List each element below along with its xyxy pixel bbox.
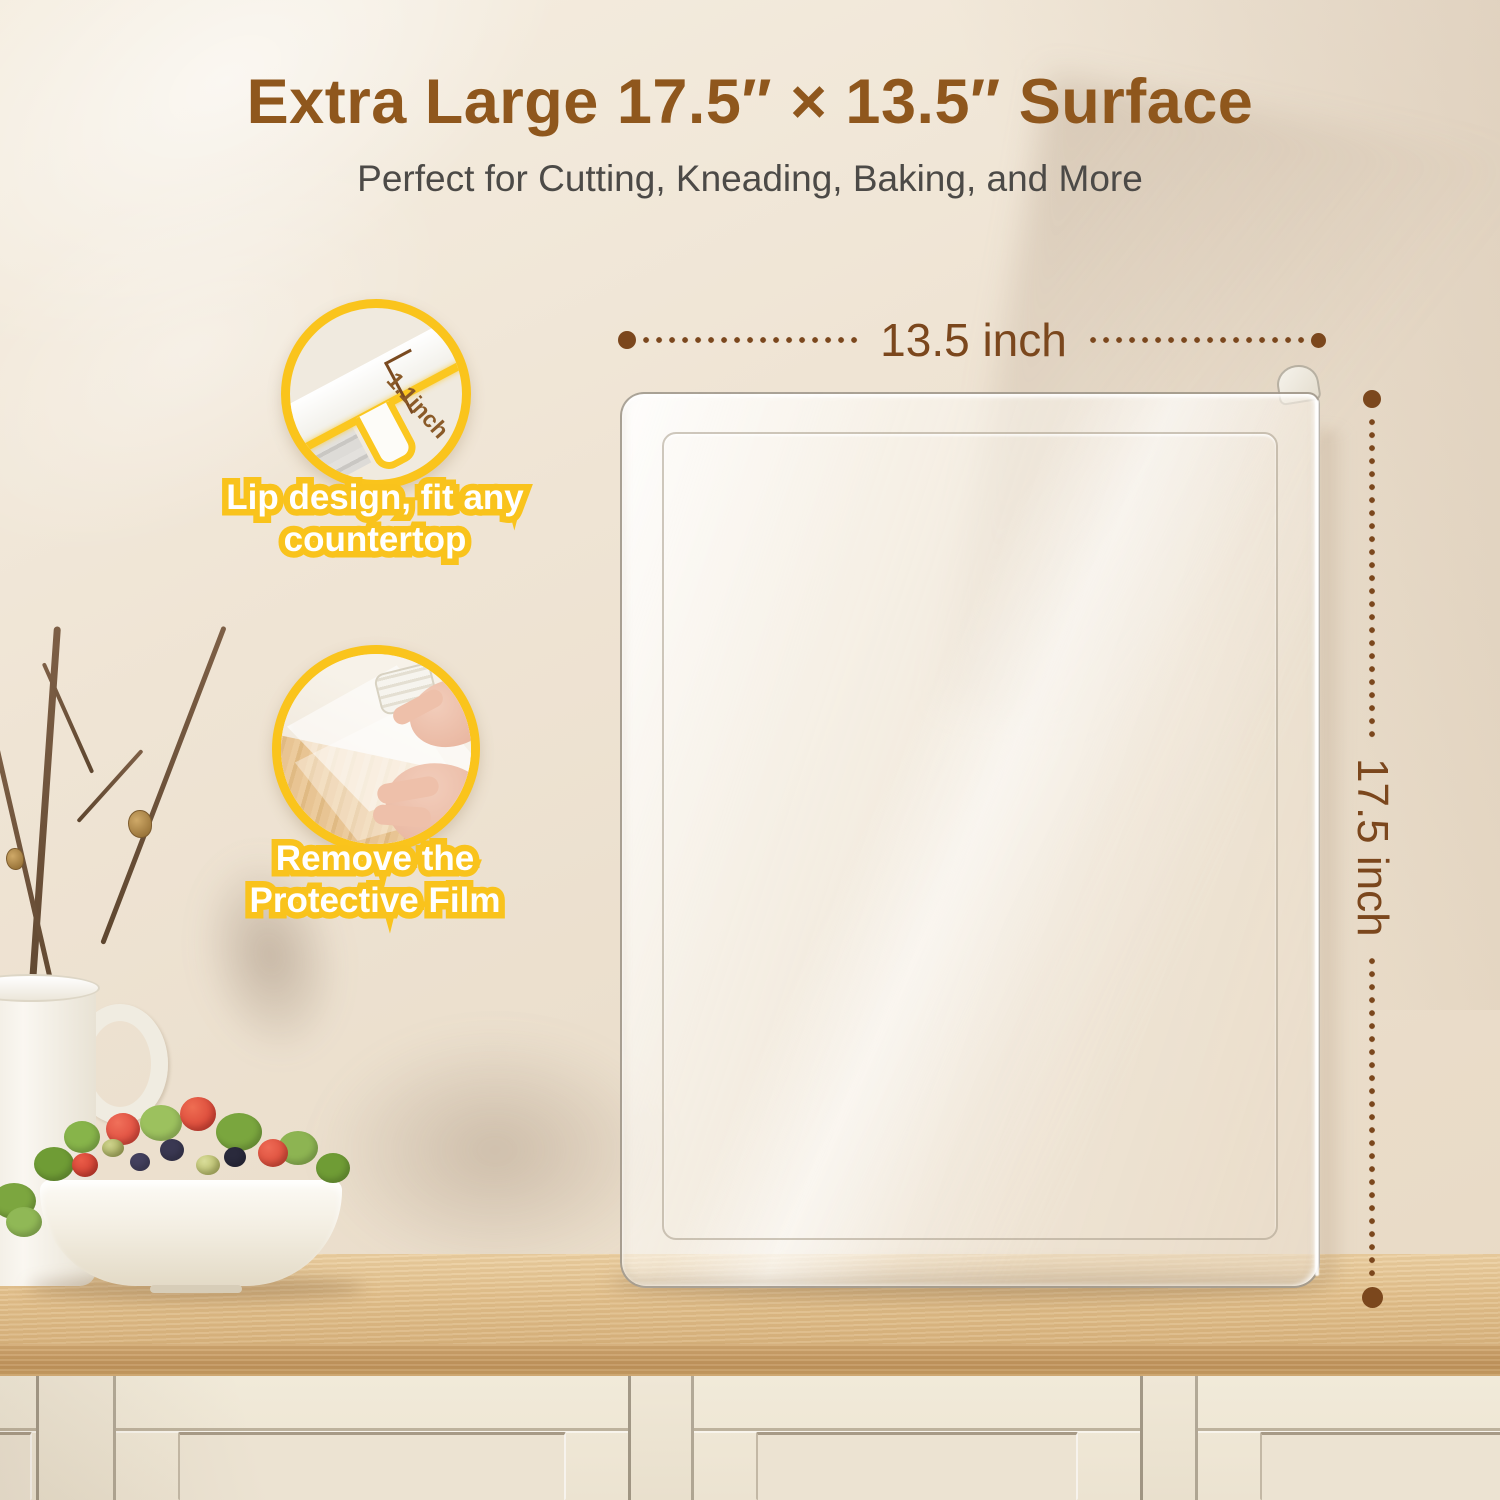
caption-line: Lip design, fit any bbox=[170, 477, 580, 519]
salad-bit bbox=[130, 1153, 150, 1171]
callout-caption-remove-film: Remove the Protective Film bbox=[165, 838, 585, 922]
salad-bit bbox=[180, 1097, 216, 1131]
pot-shadow bbox=[320, 1030, 670, 1270]
cabinet-panel bbox=[1260, 1432, 1500, 1500]
salad-bit bbox=[140, 1105, 182, 1141]
lip-design-photo: 1.1inch bbox=[281, 299, 471, 489]
dry-branches bbox=[0, 598, 220, 1018]
salad-bit bbox=[224, 1147, 246, 1167]
cabinet-stile bbox=[1140, 1376, 1198, 1500]
dotted-line bbox=[1369, 414, 1375, 742]
salad bbox=[20, 1095, 360, 1215]
dotted-line bbox=[1369, 953, 1375, 1281]
salad-bit bbox=[216, 1113, 262, 1151]
finger bbox=[372, 804, 431, 828]
salad-bit bbox=[72, 1153, 98, 1177]
height-dimension-label: 17.5 inch bbox=[1347, 758, 1397, 937]
caption-line: Protective Film bbox=[165, 880, 585, 922]
callout-caption-lip-design: Lip design, fit any countertop bbox=[170, 477, 580, 561]
width-dimension-line: 13.5 inch bbox=[618, 316, 1326, 364]
acrylic-cutting-board bbox=[620, 392, 1320, 1288]
width-dimension-label: 13.5 inch bbox=[880, 313, 1067, 367]
dimension-endpoint-dot bbox=[618, 331, 636, 349]
lip-design-scene bbox=[281, 299, 471, 489]
wood-countertop-edge bbox=[0, 1344, 1500, 1376]
page-title: Extra Large 17.5″ × 13.5″ Surface bbox=[0, 66, 1500, 138]
height-dimension-line: 17.5 inch bbox=[1346, 390, 1398, 1308]
board-cast-shadow bbox=[1318, 430, 1348, 1281]
dotted-line bbox=[1089, 337, 1305, 343]
caption-line: Remove the bbox=[165, 838, 585, 880]
salad-bit bbox=[316, 1153, 350, 1183]
branch-bud bbox=[128, 810, 152, 838]
dimension-endpoint-dot bbox=[1363, 390, 1381, 408]
dotted-line bbox=[642, 337, 858, 343]
salad-bit bbox=[64, 1121, 100, 1153]
branch-bud bbox=[6, 848, 24, 870]
dimension-endpoint-dot bbox=[1362, 1287, 1383, 1308]
salad-bit bbox=[102, 1139, 124, 1157]
cabinet-stile bbox=[628, 1376, 694, 1500]
board-edge-highlight bbox=[1315, 400, 1319, 1276]
salad-bit bbox=[196, 1155, 220, 1175]
board-groove bbox=[662, 432, 1278, 1240]
page-subtitle: Perfect for Cutting, Kneading, Baking, a… bbox=[0, 158, 1500, 200]
dimension-endpoint-dot bbox=[1311, 333, 1326, 348]
caption-line: countertop bbox=[170, 519, 580, 561]
film-removal-photo bbox=[272, 645, 480, 853]
product-banner: 13.5 inch 17.5 inch Extra Large 17.5″ × … bbox=[0, 0, 1500, 1500]
salad-bit bbox=[34, 1147, 74, 1181]
cabinet-panel bbox=[756, 1432, 1078, 1500]
salad-bit bbox=[6, 1207, 42, 1237]
salad-bit bbox=[258, 1139, 288, 1167]
cabinet-doors bbox=[0, 1376, 1500, 1500]
cabinet-light-overlay bbox=[0, 1376, 420, 1500]
salad-bowl-foot bbox=[150, 1285, 242, 1293]
salad-bit bbox=[160, 1139, 184, 1161]
